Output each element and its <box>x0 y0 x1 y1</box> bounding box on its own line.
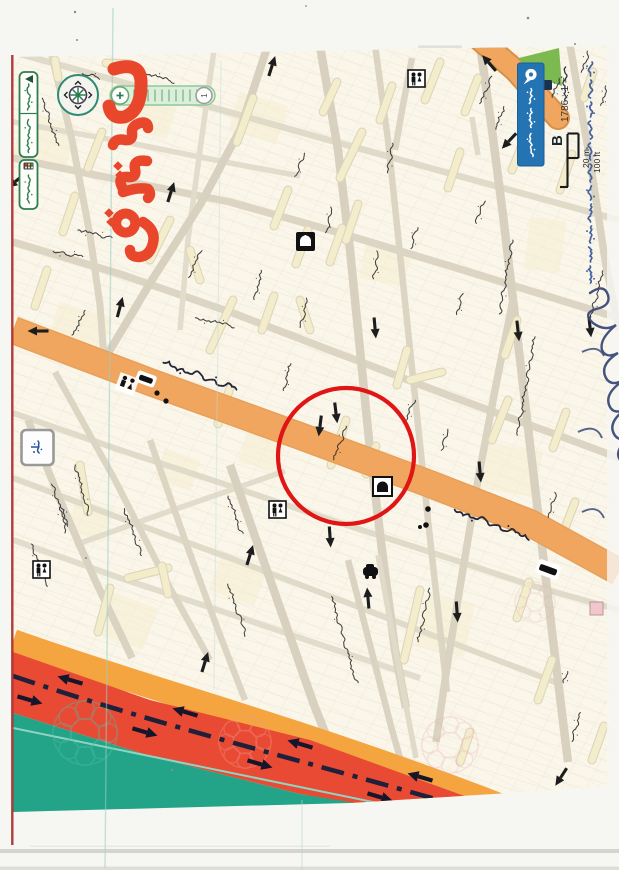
svg-text:B: B <box>549 135 566 146</box>
svg-text:1786 : 1 =: 1786 : 1 = <box>560 77 571 122</box>
svg-text:100 ft: 100 ft <box>592 151 602 173</box>
svg-text:1: 1 <box>200 93 209 98</box>
